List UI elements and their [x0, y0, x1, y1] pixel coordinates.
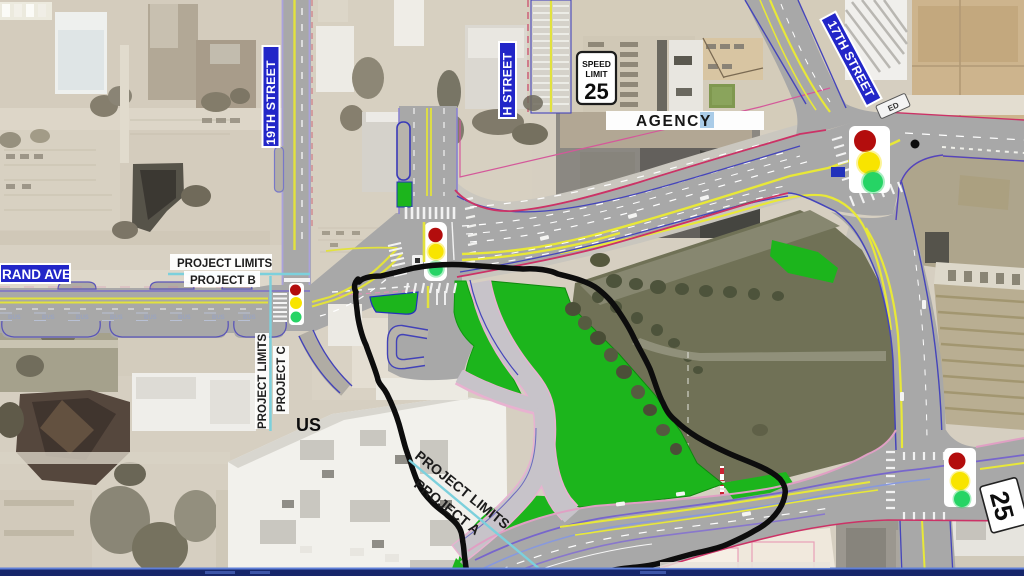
svg-text:H STREET: H STREET: [501, 52, 515, 115]
svg-text:19TH STREET: 19TH STREET: [264, 60, 278, 145]
svg-text:SPEED: SPEED: [582, 59, 611, 69]
svg-text:PROJECT B: PROJECT B: [190, 275, 256, 287]
svg-text:RAND AVE: RAND AVE: [2, 267, 71, 282]
svg-text:AGENCY: AGENCY: [636, 113, 712, 130]
svg-text:PROJECT LIMITS: PROJECT LIMITS: [257, 333, 269, 429]
svg-text:PROJECT LIMITS: PROJECT LIMITS: [177, 258, 273, 270]
svg-text:25: 25: [584, 79, 608, 104]
svg-text:PROJECT C: PROJECT C: [276, 346, 288, 412]
svg-text:LIMIT: LIMIT: [585, 69, 608, 79]
svg-text:US: US: [296, 415, 321, 435]
